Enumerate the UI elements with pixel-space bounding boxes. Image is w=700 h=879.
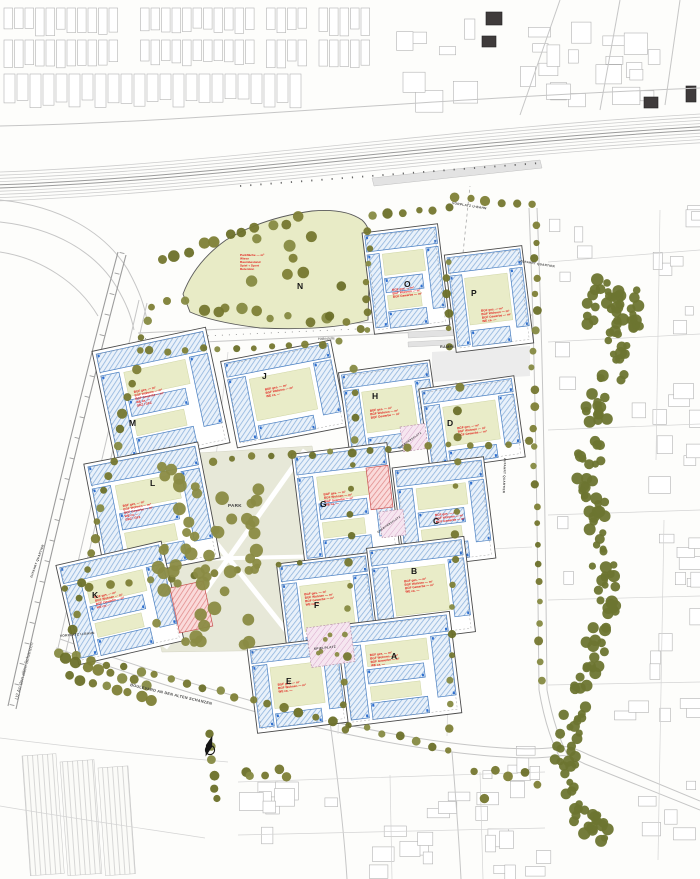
block-letter-B: B [411,566,417,576]
building [30,74,41,108]
building [141,8,150,31]
storey-mark [422,674,424,677]
building [151,40,160,65]
tree [445,309,454,318]
tree [594,506,606,518]
tree [337,281,347,291]
tree [591,273,604,286]
tree [601,574,609,582]
tree [570,751,581,762]
tree [452,556,459,563]
tree [248,452,255,459]
tree [152,561,165,574]
building [108,74,119,103]
tree [364,308,372,316]
road [105,314,110,315]
building [632,403,646,418]
tree [84,566,91,573]
tree [351,436,359,444]
building [642,822,660,836]
building [596,65,622,84]
building [423,852,433,864]
tree [319,341,327,349]
tree [350,365,358,373]
building [95,74,106,107]
tree [289,254,298,263]
field [22,754,64,876]
tree [110,458,118,466]
building [486,12,502,25]
rail-platform [372,160,542,186]
building [351,8,360,29]
tree [251,306,262,317]
tree [396,731,405,740]
tree [587,290,598,301]
building [298,40,307,66]
road [120,252,125,253]
building [88,40,97,66]
building [651,651,661,664]
tree [428,207,436,215]
building [690,608,700,625]
tree [344,558,353,567]
building [109,8,118,32]
tree [282,772,291,781]
building [530,766,540,779]
building [675,572,685,584]
storey-mark [365,510,367,513]
tree [327,449,333,455]
building [225,8,234,30]
tree [534,781,542,789]
block-letter-J: J [262,371,267,381]
building [568,50,578,63]
tree [531,480,539,488]
tree [613,316,621,324]
tree [534,520,540,526]
tree [76,595,83,602]
building [67,8,76,33]
road [115,273,120,274]
road [480,772,483,879]
building [99,8,108,34]
tree [157,583,170,596]
tree [190,532,200,542]
building [465,19,475,39]
tree [454,458,461,465]
building [560,272,570,281]
tree [617,376,626,385]
block-letter-K: K [92,590,99,600]
tree [611,582,621,592]
storey-mark [499,397,501,400]
building [25,8,34,28]
tree [535,561,542,568]
tree [328,633,333,638]
tree [341,679,348,686]
tree [581,492,588,499]
tree [114,442,123,451]
tree [214,346,220,352]
tree [467,195,474,202]
tree [275,765,285,775]
tree [252,234,261,243]
storey-mark [508,338,510,341]
tree [584,523,596,535]
building [516,746,535,755]
building [416,90,443,112]
tree [224,565,237,578]
tree [282,269,293,280]
tree [533,240,539,246]
tree [530,425,537,432]
tree [202,572,211,581]
tree [190,639,198,647]
tree [366,261,372,267]
building [251,74,262,103]
building [680,699,700,709]
tree [528,201,535,208]
building [99,40,108,65]
tree [92,664,104,676]
block-letter-G: G [320,499,327,509]
storey-mark [319,718,321,721]
tree [112,685,123,696]
building [183,40,192,66]
building [372,847,394,861]
building [500,831,514,849]
tree [448,630,456,638]
tree [525,437,533,445]
tree [534,504,541,511]
building [397,32,413,51]
tree [185,547,198,560]
tree [306,231,317,242]
tree [70,657,81,668]
building [162,8,171,32]
tree [226,229,236,239]
tree [229,456,235,462]
tree [455,383,464,392]
building [439,47,455,55]
tree [147,576,154,583]
building [653,252,662,269]
tree [362,295,370,303]
tree [357,325,365,333]
tree [343,318,351,326]
tree [593,811,601,819]
storey-mark [369,439,371,442]
storey-mark [470,482,472,485]
tree [103,662,110,669]
tree [600,647,609,656]
tree [191,482,200,491]
building [629,701,649,713]
building [78,40,87,65]
tree [445,747,451,753]
storey-mark [354,576,356,579]
tree [340,701,347,708]
tree [597,370,609,382]
tree [128,380,136,388]
station-forecourt [432,346,530,382]
tree [276,562,282,568]
building [689,410,700,427]
building [214,8,223,32]
building [67,40,76,66]
tree [250,696,257,703]
tree [612,285,624,297]
tree [83,662,93,672]
tree [214,307,225,318]
tree [537,599,543,605]
tree [336,338,343,345]
tree [145,346,153,354]
block-letter-L: L [150,478,155,488]
building [686,444,700,458]
tree [207,755,216,764]
building [319,40,328,66]
tree [253,483,265,495]
street-label-zufahrt-top: ZUFAHRT QUARTIER [520,259,556,269]
tree [590,492,602,504]
building [225,74,236,99]
building [418,832,433,845]
building [476,806,488,820]
tree [454,508,460,514]
tree [325,312,334,321]
building [670,257,683,267]
building [17,74,28,100]
tree [157,462,167,472]
tree [538,677,546,685]
building [330,8,339,36]
tree [100,487,107,494]
tree [587,640,599,652]
tree [416,207,422,213]
storey-mark [427,248,429,251]
tree [106,580,115,589]
storey-mark [368,256,370,259]
tree [167,565,179,577]
building [526,867,546,877]
tree [485,442,492,449]
tree [117,409,127,419]
building [225,40,234,62]
building [650,664,660,680]
storey-mark [425,407,427,410]
tree [89,679,97,687]
tree [629,292,640,303]
building [438,802,456,814]
building [162,40,171,61]
tree [266,315,273,322]
building [665,810,678,824]
building [235,40,244,65]
tree [250,565,259,574]
tree [328,716,338,726]
building [186,74,197,101]
tree [505,441,512,448]
masterplan-svg: BGF ges. — m²BGF Wohnen — m²BGF Gewerbe … [0,0,700,879]
tree [453,406,462,415]
tree [573,717,581,725]
tree [552,741,562,751]
tree [342,632,348,638]
tree [137,347,144,354]
tree [593,541,600,548]
street-label-zufahrt-left: ZUFAHRT QUARTIER [29,543,45,578]
building [649,477,671,494]
tree [480,196,490,206]
block-M: BGF ges. — m²BGF Wohnen — m²BGF Gewerbe … [92,327,230,467]
tree [159,471,170,482]
tree [533,222,541,230]
tree [210,771,220,781]
tree [163,297,171,305]
building [25,40,34,65]
building [361,8,370,35]
tree [242,614,254,626]
tree [569,816,579,826]
road [45,561,50,562]
tree [284,312,291,319]
tree [352,390,359,397]
building [78,8,87,33]
building [659,534,674,543]
road [100,335,105,336]
tree [335,652,340,657]
storey-mark [277,714,279,717]
tree [251,345,257,351]
building [685,307,693,315]
building [691,572,700,587]
tree [123,393,131,401]
tree [594,407,603,416]
tree [586,388,598,400]
building [246,8,255,30]
tree [603,279,611,287]
tree [62,585,68,591]
road [55,519,60,520]
storey-mark [345,392,347,395]
storey-mark [416,382,418,385]
tree [316,651,321,656]
block-letter-N: N [297,281,303,291]
building [4,40,13,67]
building [679,557,700,570]
building [411,32,426,43]
tree [120,663,127,670]
tree [530,463,536,469]
tree [467,442,474,449]
tree [606,328,615,337]
storey-mark [421,285,423,288]
tree [428,743,436,751]
tree [342,726,349,733]
tree [347,583,353,589]
building [648,50,660,65]
building [109,40,118,62]
tree [610,351,617,358]
building [624,33,647,54]
tree [94,518,101,525]
tree [237,228,247,238]
tree [595,835,607,847]
building [369,865,388,878]
tree [593,398,602,407]
road [30,622,35,623]
tree [181,637,190,646]
tree [537,659,544,666]
building [505,865,516,879]
tree [363,227,371,235]
block-D: BGF ges. — m²BGF Wohnen — m²BGF Gewerbe … [419,376,525,471]
road [0,252,98,316]
road [110,293,115,294]
tree [513,200,521,208]
building [199,74,210,102]
building [134,74,145,106]
tree [181,297,189,305]
storey-mark [366,714,368,717]
tree [576,673,585,682]
tree [138,334,144,340]
rampe-label: RAMPE [440,345,455,349]
building [564,571,574,584]
storey-mark [511,269,513,272]
building [214,40,223,61]
tree [281,220,291,230]
tree [530,402,539,411]
storey-mark [467,341,469,344]
tree [451,530,459,538]
tree [288,450,297,459]
building [560,377,576,390]
tree [589,315,599,325]
building [36,40,45,66]
tree [210,785,218,793]
road [10,704,15,705]
tree [446,677,453,684]
tree [382,208,392,218]
tree [578,827,590,839]
tree [445,724,453,732]
road [75,437,80,438]
tree [168,675,175,682]
tree [348,532,355,539]
building [275,789,295,807]
building [277,74,288,102]
block-letter-O: O [404,279,411,289]
tree [236,303,247,314]
tree [385,446,392,453]
tree [536,620,543,627]
tree [146,695,157,706]
tree [132,365,141,374]
field [60,760,102,876]
building [558,517,568,529]
tree [606,596,619,609]
building [574,227,582,242]
tree [200,344,207,351]
tree [453,483,459,489]
tree [531,386,540,395]
tree [532,291,538,297]
street-label-u2: U2 An den alten Schanzen [14,642,35,701]
tree [602,582,609,589]
tree [599,624,611,636]
